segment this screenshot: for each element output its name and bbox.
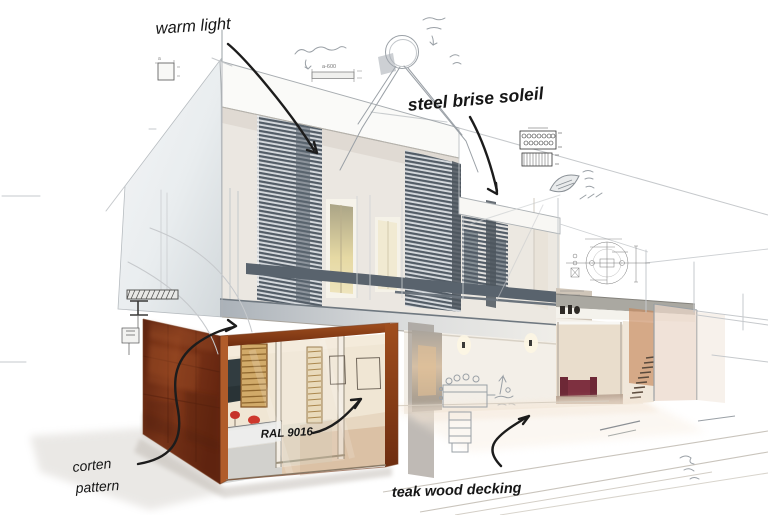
- svg-text:pattern: pattern: [74, 477, 120, 496]
- svg-text:a-600: a-600: [322, 64, 336, 70]
- svg-text:a: a: [158, 56, 161, 62]
